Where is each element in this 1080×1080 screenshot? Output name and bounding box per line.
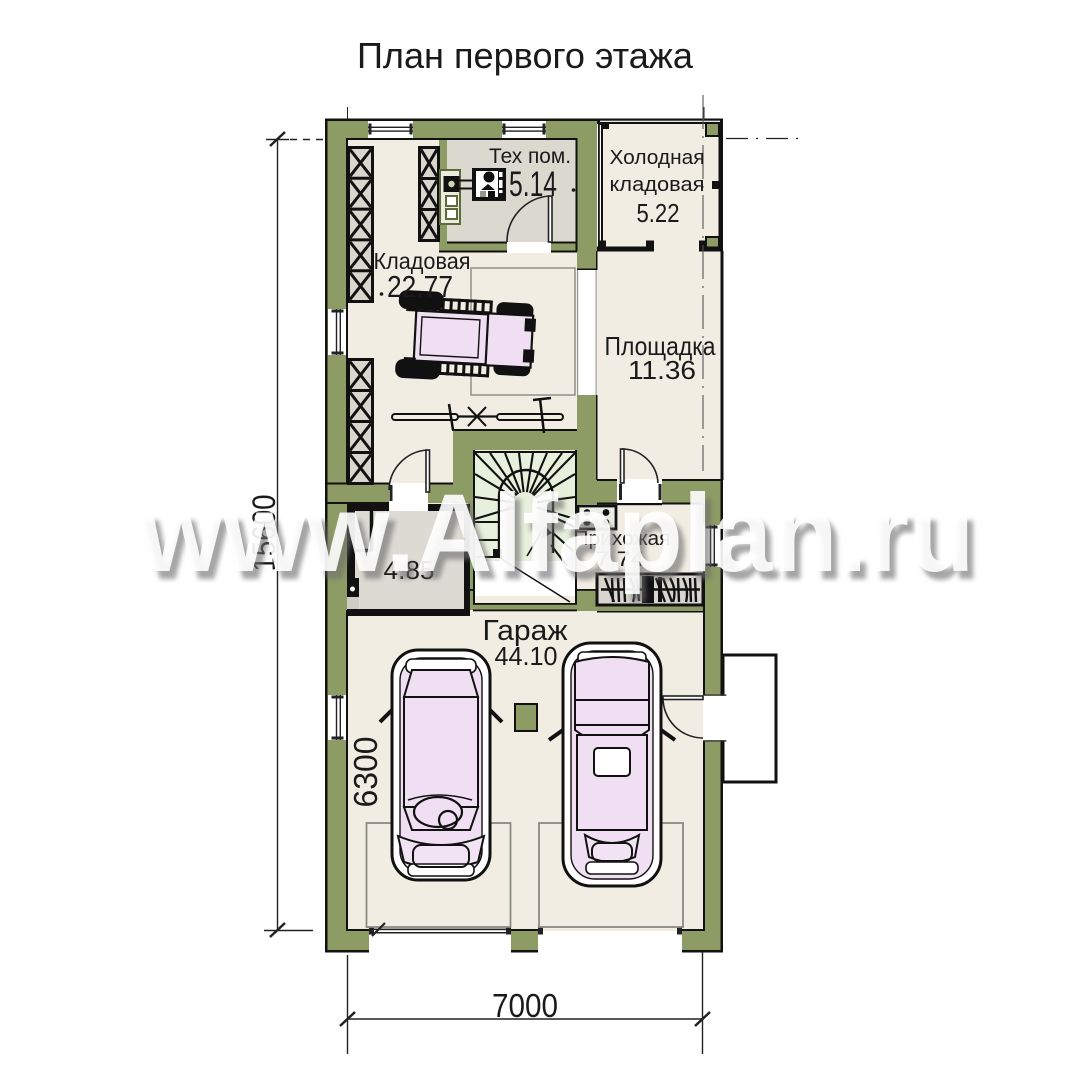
svg-text:11.36: 11.36 [628, 355, 696, 385]
svg-text:Холодная: Холодная [610, 147, 705, 169]
svg-text:5.14: 5.14 [509, 165, 557, 204]
svg-text:План первого этажа: План первого этажа [357, 35, 694, 76]
svg-text:6300: 6300 [347, 737, 384, 808]
svg-text:кладовая: кладовая [610, 174, 705, 196]
svg-text:5.22: 5.22 [637, 198, 680, 228]
svg-text:www.Alfaplan.ru: www.Alfaplan.ru [139, 472, 975, 595]
svg-text:22.77: 22.77 [387, 269, 453, 304]
svg-text:7000: 7000 [492, 987, 558, 1024]
svg-text:44.10: 44.10 [495, 641, 558, 671]
